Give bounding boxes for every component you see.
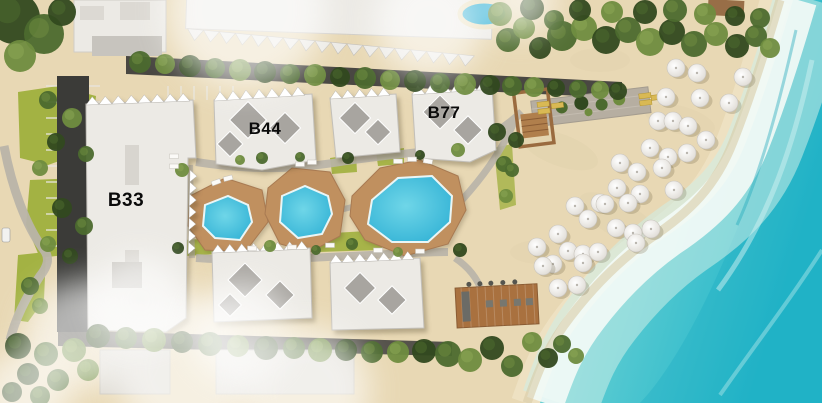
tree-highlight [416,151,421,156]
umbrella-tip [657,120,659,122]
tree-highlight [490,125,499,134]
tree-highlight [611,84,620,93]
umbrella-tip [557,287,559,289]
tree-highlight [461,350,473,362]
umbrella-tip [557,233,559,235]
tree-highlight [348,239,354,245]
tree-highlight [555,337,564,346]
tree-highlight [666,0,678,12]
umbrella-tip [536,246,538,248]
tree-highlight [52,1,66,15]
tree-highlight [236,156,241,161]
tree-highlight [618,20,631,33]
tree-highlight [510,134,518,142]
tree-highlight [80,148,88,156]
tree-highlight [593,83,602,92]
umbrella-tip [675,67,677,69]
tree-highlight [662,22,675,35]
tree-highlight [504,357,515,368]
tree-highlight [438,344,451,357]
umbrella-tip [632,232,634,234]
beach-bar [455,278,539,328]
pool-lounger [288,245,297,250]
tree-highlight [357,69,368,80]
pool-middle [280,186,332,238]
tree-highlight [158,56,168,66]
tree-highlight [728,36,740,48]
umbrella-tip [627,202,629,204]
umbrella-tip [616,187,618,189]
tree-highlight [525,334,535,344]
tree-highlight [23,279,32,288]
building-lower-right [330,252,424,331]
umbrella-tip [639,193,641,195]
tree-highlight [394,248,399,253]
umbrella-tip [576,284,578,286]
umbrella-tip [667,156,669,158]
tree-highlight [501,190,508,197]
tree-highlight [604,3,615,14]
neighbor-annex [92,36,162,56]
pool-lounger [394,159,403,164]
tree-highlight [415,341,427,353]
tree-highlight [457,75,468,86]
tree-highlight [49,135,58,144]
tree-highlight [383,72,393,82]
bar-table [500,299,507,306]
pool-lounger [408,157,417,162]
tree-highlight [684,34,697,47]
pool-lounger [308,160,317,165]
umbrella-tip [696,72,698,74]
umbrella-tip [650,228,652,230]
umbrella-tip [567,250,569,252]
umbrella-tip [687,125,689,127]
building-label-b33: B33 [108,190,144,212]
umbrella-tip [686,152,688,154]
bar-table [526,298,533,305]
tree-highlight [763,40,773,50]
tree-highlight [390,343,401,354]
tree-highlight [532,39,543,50]
tree-highlight [483,77,493,87]
umbrella-tip [705,139,707,141]
tree-highlight [132,53,143,64]
pool-lounger [296,162,305,167]
tree-highlight [541,350,551,360]
tree-highlight [344,153,350,159]
tree-highlight [505,78,515,88]
umbrella-tip [619,162,621,164]
umbrella-tip [665,96,667,98]
umbrella-tip [728,102,730,104]
pool-lounger [170,154,179,159]
pool-left [203,196,252,240]
umbrella-tip [542,265,544,267]
pool-lounger [326,243,335,248]
tree-highlight [549,81,558,90]
umbrella-tip [742,76,744,78]
umbrella-tip [661,167,663,169]
umbrella-tip [597,251,599,253]
tree-highlight [507,164,514,171]
building-label-b44: B44 [249,119,282,139]
tree-highlight [333,69,343,79]
tree-highlight [753,10,763,20]
tree-highlight [728,8,738,18]
tree-highlight [258,153,264,159]
tree-highlight [527,79,537,89]
tree-highlight [453,144,460,151]
tree-highlight [41,93,50,102]
umbrella-tip [636,171,638,173]
tree-highlight [640,31,654,45]
tree-highlight [455,244,462,251]
tree-highlight [707,24,719,36]
tree-highlight [77,219,86,228]
tree-highlight [266,241,272,247]
resort-master-plan-image: B33 B44 B77 [0,0,822,403]
tree-highlight [64,250,72,258]
tree-highlight [312,246,317,251]
umbrella-tip [649,147,651,149]
parked-car [2,228,10,242]
umbrella-tip [673,189,675,191]
umbrella-tip [604,203,606,205]
umbrella-tip [699,97,701,99]
tree-highlight [570,350,578,358]
bar-table [514,299,521,306]
umbrella-tip [574,205,576,207]
umbrella-tip [672,120,674,122]
building-middle [330,88,400,158]
tree-highlight [55,200,65,210]
tree-highlight [483,338,495,350]
umbrella-tip [635,242,637,244]
tree-highlight [8,336,21,349]
tree-highlight [596,29,610,43]
tree-highlight [697,5,708,16]
haze-cloud [95,255,185,345]
tree-highlight [364,343,375,354]
tree-highlight [748,27,759,38]
pool-lounger [416,249,425,254]
haze-cloud [190,282,290,382]
tree-highlight [34,162,42,170]
tree-highlight [498,158,506,166]
pool-lounger [170,164,179,169]
tree-highlight [174,243,180,249]
bar-table [486,300,493,307]
tree-highlight [65,110,75,120]
tree-highlight [636,2,648,14]
umbrella-tip [587,218,589,220]
bar-counter [461,291,471,321]
tree-highlight [296,153,301,158]
tree-highlight [572,1,583,12]
umbrella-tip [582,262,584,264]
tree-highlight [307,66,318,77]
building-label-b77: B77 [428,103,461,123]
umbrella-tip [615,227,617,229]
tree-highlight [42,238,50,246]
tree-highlight [8,43,24,59]
pool-lounger [374,248,383,253]
tree-highlight [571,82,580,91]
tree-highlight [29,18,49,38]
pool-lounger [248,246,257,251]
